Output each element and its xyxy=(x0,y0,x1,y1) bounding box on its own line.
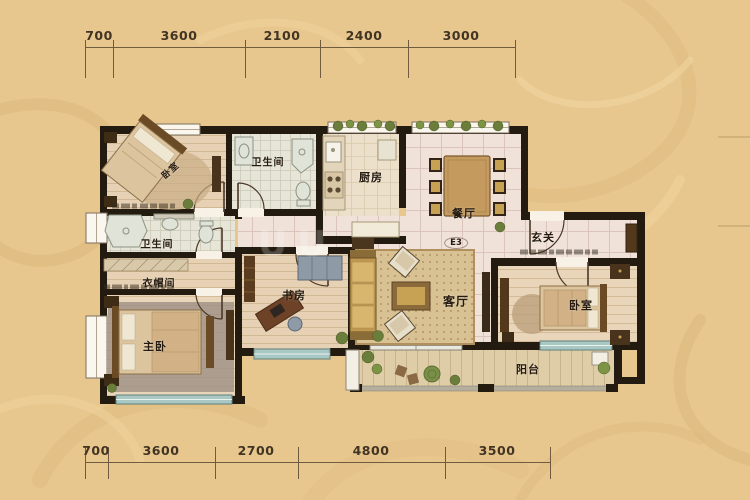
room-label-balcony: 阳台 xyxy=(516,361,540,377)
dim-value: 700 xyxy=(85,28,113,43)
room-label-dining: 餐厅 xyxy=(452,205,476,221)
dim-value: 3600 xyxy=(161,28,198,43)
dim-line xyxy=(85,462,550,463)
dim-tick xyxy=(85,40,86,78)
furniture-closet xyxy=(104,259,188,271)
dim-line xyxy=(85,47,515,48)
dim-tick xyxy=(320,40,321,78)
room-label-bath-top: 卫生间 xyxy=(252,154,285,169)
edge-artifact-lines xyxy=(718,137,750,226)
dim-value: 2100 xyxy=(264,28,301,43)
dim-tick xyxy=(245,40,246,78)
dim-value: 2400 xyxy=(346,28,383,43)
dim-tick xyxy=(515,40,516,78)
dim-value: 3500 xyxy=(479,443,516,458)
room-label-bath-lower: 卫生间 xyxy=(141,236,174,251)
dim-tick xyxy=(550,447,551,479)
room-label-bedroom-right: 卧室 xyxy=(569,297,593,313)
dim-tick xyxy=(215,447,216,479)
dim-value: 700 xyxy=(82,443,110,458)
dim-value: 3600 xyxy=(143,443,180,458)
dim-tick xyxy=(445,447,446,479)
dim-tick xyxy=(408,40,409,78)
floorplan-page: 700 3600 2100 2400 3000 700 3600 2700 48… xyxy=(0,0,750,500)
room-label-study: 书房 xyxy=(282,287,306,303)
dim-value: 4800 xyxy=(353,443,390,458)
unit-code-label: E3 xyxy=(444,237,468,249)
dim-value: 2700 xyxy=(238,443,275,458)
room-label-foyer: 玄关 xyxy=(531,229,555,245)
watermark: UU xyxy=(258,224,336,265)
room-label-closet: 衣帽间 xyxy=(143,275,176,290)
room-label-kitchen: 厨房 xyxy=(359,169,383,185)
room-label-living: 客厅 xyxy=(443,293,469,310)
dim-tick xyxy=(113,40,114,78)
dim-tick xyxy=(298,447,299,479)
dim-value: 3000 xyxy=(443,28,480,43)
room-label-master: 主卧 xyxy=(143,338,167,354)
furniture-living xyxy=(350,238,490,344)
